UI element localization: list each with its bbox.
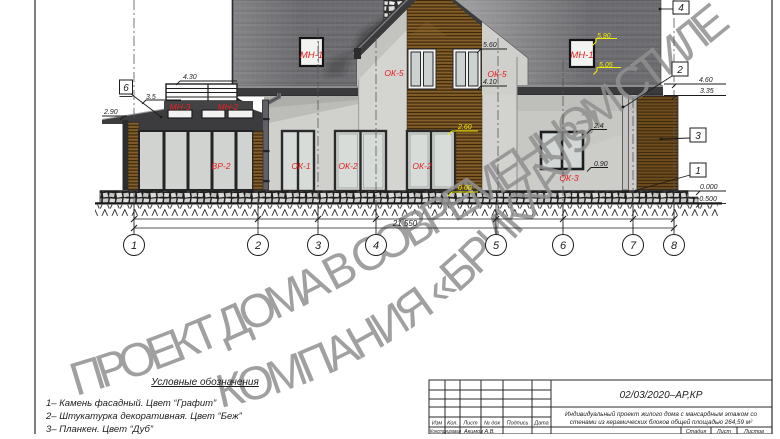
- svg-text:МН-3: МН-3: [170, 102, 191, 112]
- svg-text:Листов: Листов: [743, 429, 764, 434]
- svg-text:ОК-1: ОК-1: [291, 161, 310, 171]
- svg-text:3.35: 3.35: [700, 88, 714, 95]
- svg-text:7: 7: [630, 240, 637, 252]
- svg-text:4.10: 4.10: [483, 79, 497, 86]
- svg-text:МН-1: МН-1: [300, 50, 323, 61]
- svg-text:Лист: Лист: [716, 429, 732, 434]
- svg-text:Лист: Лист: [462, 421, 478, 427]
- svg-text:№ док: № док: [484, 421, 501, 427]
- svg-text:ОК-5: ОК-5: [384, 68, 403, 78]
- svg-text:МН-2: МН-2: [218, 102, 239, 112]
- svg-text:5.60: 5.60: [483, 42, 497, 49]
- svg-text:8: 8: [671, 240, 678, 252]
- svg-text:Условные обозначения: Условные обозначения: [150, 376, 259, 388]
- svg-text:Кол.: Кол.: [447, 421, 458, 427]
- svg-text:1– Камень фасадный. Цвет “Граф: 1– Камень фасадный. Цвет “Графит”: [46, 398, 217, 409]
- svg-text:2: 2: [676, 65, 683, 76]
- svg-text:ОК-5: ОК-5: [487, 69, 506, 79]
- svg-text:2.60: 2.60: [457, 124, 472, 131]
- svg-text:0.00: 0.00: [458, 185, 472, 192]
- svg-text:3: 3: [695, 131, 701, 142]
- svg-text:4.30: 4.30: [183, 74, 197, 81]
- svg-text:2– Штукатурка декоративная. Цв: 2– Штукатурка декоративная. Цвет “Беж”: [45, 411, 243, 422]
- svg-text:6: 6: [123, 83, 129, 94]
- svg-text:стенами из керамических блоко: стенами из керамических блоков общей пло…: [570, 418, 753, 426]
- svg-text:ОК-2: ОК-2: [412, 161, 431, 171]
- svg-text:Подпись: Подпись: [507, 421, 529, 427]
- svg-text:МН-1: МН-1: [570, 50, 593, 61]
- svg-text:Стадия: Стадия: [686, 429, 707, 434]
- svg-text:ВР-2: ВР-2: [212, 161, 231, 171]
- svg-text:0.000: 0.000: [700, 184, 718, 191]
- svg-text:4: 4: [678, 3, 684, 14]
- svg-text:4.60: 4.60: [699, 77, 713, 84]
- svg-text:ОК-3: ОК-3: [559, 173, 578, 183]
- svg-text:1: 1: [131, 240, 137, 252]
- svg-text:2.4: 2.4: [593, 123, 604, 130]
- svg-text:Изм: Изм: [432, 421, 442, 427]
- svg-text:ОК-2: ОК-2: [338, 161, 357, 171]
- svg-text:-0.500: -0.500: [697, 196, 717, 203]
- svg-text:Индивидуальный проект жилого: Индивидуальный проект жилого дома с манс…: [565, 410, 757, 418]
- svg-text:Акимов А.В.: Акимов А.В.: [463, 429, 495, 434]
- svg-text:6: 6: [560, 240, 567, 252]
- svg-text:4: 4: [373, 240, 379, 252]
- svg-text:2: 2: [254, 240, 261, 252]
- svg-text:Дата: Дата: [533, 421, 549, 427]
- svg-text:5: 5: [493, 240, 500, 252]
- svg-text:2.90: 2.90: [103, 109, 118, 116]
- svg-text:02/03/2020–АР,КР: 02/03/2020–АР,КР: [620, 390, 703, 401]
- svg-text:3: 3: [315, 240, 322, 252]
- svg-text:1: 1: [695, 166, 701, 177]
- svg-text:0.90: 0.90: [594, 161, 608, 168]
- svg-text:Конструировал: Конструировал: [430, 429, 461, 434]
- svg-text:21 550: 21 550: [392, 219, 418, 228]
- svg-text:3– Планкен. Цвет “Дуб”: 3– Планкен. Цвет “Дуб”: [46, 424, 154, 434]
